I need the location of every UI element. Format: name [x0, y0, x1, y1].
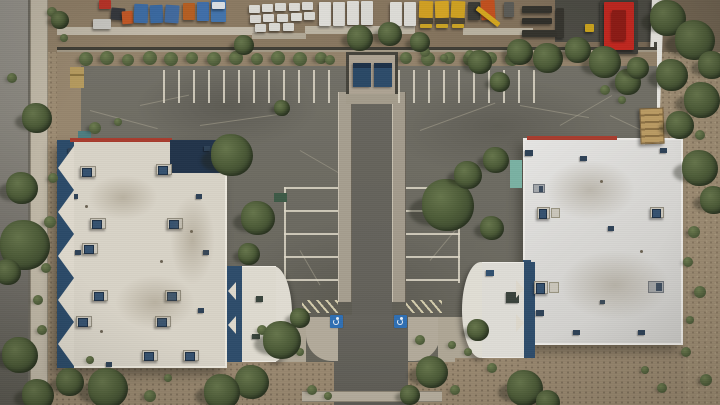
shrub [700, 374, 712, 386]
tree [698, 51, 720, 79]
dumpster [374, 63, 392, 87]
building-right-red-parapet [527, 136, 617, 140]
shrub-shadow [684, 319, 692, 323]
building-left-red-parapet [70, 138, 172, 142]
pallet-stack [639, 108, 664, 145]
tree-shadow [693, 196, 720, 211]
sidewalk-crossing-bottom [302, 391, 442, 402]
shrub-shadow [697, 378, 708, 385]
building-right-teal-awning [510, 160, 522, 188]
building-left-dark-corner [170, 140, 227, 173]
shrub-shadow [691, 290, 702, 297]
tree-shadow [691, 61, 718, 76]
shrub [683, 257, 693, 267]
tree [682, 150, 718, 186]
building-right-roof [523, 138, 683, 345]
entry-canopy-right-blue-strip [524, 262, 535, 358]
street-west [0, 0, 30, 405]
walkway-left [338, 92, 352, 302]
shrub [694, 286, 706, 298]
walkway-right [392, 92, 406, 302]
aerial-photo [0, 0, 720, 405]
shrub-shadow [693, 134, 703, 140]
sidewalk-west [30, 0, 48, 405]
dumpster-apron [346, 94, 398, 104]
shrub [688, 226, 700, 238]
entry-canopy-right-roof [482, 262, 526, 358]
entry-canopy-left-roof [242, 266, 276, 362]
yard-dark-pad [555, 0, 660, 42]
dumpster [353, 63, 371, 87]
building-left-roof [57, 140, 227, 368]
entry-canopy-left-blue-strip [227, 266, 242, 362]
dirt-below-right-building [523, 345, 685, 405]
shrub [695, 130, 705, 140]
building-left-blue-awning-strip [57, 140, 74, 368]
tree-shadow [675, 95, 709, 115]
tree [666, 111, 694, 139]
center-drive-aisle [352, 92, 392, 315]
tree [684, 82, 720, 118]
dirt-patch-topleft [57, 52, 81, 140]
shrub-shadow [685, 230, 696, 237]
shrub [686, 316, 694, 324]
dirt-bottom-left [48, 362, 243, 405]
tree [700, 186, 720, 214]
